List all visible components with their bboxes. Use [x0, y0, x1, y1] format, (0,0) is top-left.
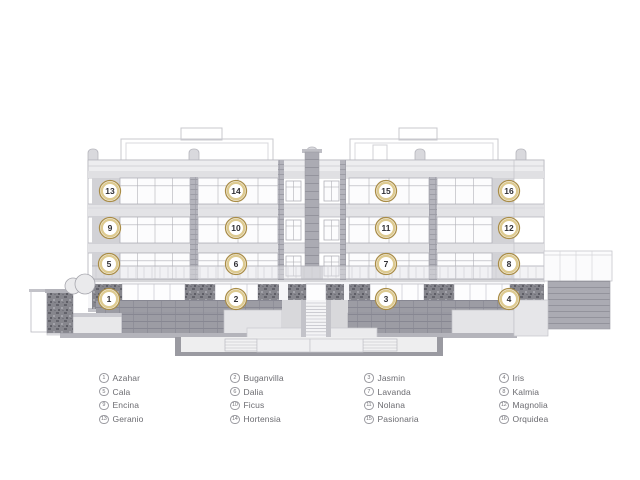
unit-number: 8 — [507, 259, 512, 269]
legend-number-icon: 8 — [499, 387, 509, 397]
legend-name: Ficus — [244, 400, 265, 410]
legend-name: Azahar — [113, 373, 141, 383]
legend-item-pasionaria: 15Pasionaria — [364, 412, 419, 426]
unit-badge-13: 13 — [100, 181, 121, 202]
legend-item-magnolia: 12Magnolia — [499, 399, 548, 413]
unit-number: 6 — [234, 259, 239, 269]
bush-icon — [75, 274, 95, 294]
legend-item-iris: 4Iris — [499, 371, 548, 385]
window-bay — [120, 217, 190, 243]
legend-item-buganvilla: 2Buganvilla — [230, 371, 284, 385]
legend-number-icon: 9 — [99, 401, 109, 411]
legend-number-icon: 3 — [364, 373, 374, 383]
legend-item-azahar: 1Azahar — [99, 371, 143, 385]
unit-badge-2: 2 — [226, 289, 247, 310]
entrance-stair — [301, 300, 331, 337]
unit-number: 16 — [504, 186, 514, 196]
legend-number-icon: 11 — [364, 401, 374, 411]
legend-number-icon: 6 — [230, 387, 240, 397]
legend-number-icon: 12 — [499, 401, 509, 411]
unit-badge-12: 12 — [499, 218, 520, 239]
legend-item-dalia: 6Dalia — [230, 385, 284, 399]
legend-name: Kalmia — [513, 387, 540, 397]
legend-number-icon: 10 — [230, 401, 240, 411]
legend-name: Cala — [113, 387, 131, 397]
legend-item-kalmia: 8Kalmia — [499, 385, 548, 399]
window-bay — [324, 220, 339, 240]
window-bay — [286, 220, 301, 240]
legend-item-geranio: 13Geranio — [99, 412, 143, 426]
unit-badge-11: 11 — [376, 218, 397, 239]
legend: 1Azahar5Cala9Encina13Geranio2Buganvilla6… — [0, 371, 640, 441]
window-bay — [120, 178, 190, 204]
unit-number: 1 — [107, 294, 112, 304]
legend-item-orquidea: 16Orquidea — [499, 412, 548, 426]
unit-number: 13 — [105, 186, 115, 196]
legend-item-nolana: 11Nolana — [364, 399, 419, 413]
unit-badge-4: 4 — [499, 289, 520, 310]
unit-number: 10 — [231, 223, 241, 233]
unit-badge-3: 3 — [376, 289, 397, 310]
legend-item-ficus: 10Ficus — [230, 399, 284, 413]
legend-name: Encina — [113, 400, 140, 410]
legend-number-icon: 7 — [364, 387, 374, 397]
unit-number: 4 — [507, 294, 512, 304]
legend-name: Dalia — [244, 387, 264, 397]
unit-badge-10: 10 — [226, 218, 247, 239]
unit-number: 2 — [234, 294, 239, 304]
legend-number-icon: 13 — [99, 415, 109, 425]
legend-column-1: 1Azahar5Cala9Encina13Geranio — [99, 371, 143, 426]
unit-badge-9: 9 — [100, 218, 121, 239]
legend-name: Pasionaria — [378, 414, 419, 424]
legend-name: Orquidea — [513, 414, 549, 424]
legend-number-icon: 4 — [499, 373, 509, 383]
architectural-elevation-page: 12345678910111213141516 1Azahar5Cala9Enc… — [0, 0, 640, 480]
unit-number: 3 — [384, 294, 389, 304]
legend-name: Hortensia — [244, 414, 281, 424]
legend-column-2: 2Buganvilla6Dalia10Ficus14Hortensia — [230, 371, 284, 426]
legend-name: Nolana — [378, 400, 406, 410]
unit-badge-15: 15 — [376, 181, 397, 202]
unit-number: 9 — [108, 223, 113, 233]
unit-badge-14: 14 — [226, 181, 247, 202]
window-bay — [437, 217, 492, 243]
unit-number: 11 — [382, 223, 391, 233]
legend-name: Geranio — [113, 414, 144, 424]
legend-number-icon: 16 — [499, 415, 509, 425]
legend-number-icon: 5 — [99, 387, 109, 397]
legend-column-4: 4Iris8Kalmia12Magnolia16Orquidea — [499, 371, 548, 426]
legend-name: Iris — [513, 373, 525, 383]
legend-item-lavanda: 7Lavanda — [364, 385, 419, 399]
legend-item-cala: 5Cala — [99, 385, 143, 399]
window-bay — [324, 181, 339, 201]
legend-name: Magnolia — [513, 400, 548, 410]
basement — [175, 337, 443, 356]
terraces — [45, 300, 540, 338]
window-bay — [437, 178, 492, 204]
unit-number: 14 — [231, 186, 241, 196]
legend-number-icon: 15 — [364, 415, 374, 425]
legend-number-icon: 14 — [230, 415, 240, 425]
unit-number: 12 — [504, 223, 514, 233]
legend-number-icon: 2 — [230, 373, 240, 383]
legend-item-hortensia: 14Hortensia — [230, 412, 284, 426]
legend-number-icon: 1 — [99, 373, 109, 383]
legend-item-encina: 9Encina — [99, 399, 143, 413]
legend-name: Jasmin — [378, 373, 406, 383]
unit-badge-16: 16 — [499, 181, 520, 202]
legend-name: Lavanda — [378, 387, 411, 397]
unit-badge-5: 5 — [99, 254, 120, 275]
unit-number: 15 — [381, 186, 391, 196]
legend-item-jasmin: 3Jasmin — [364, 371, 419, 385]
unit-number: 5 — [107, 259, 112, 269]
legend-column-3: 3Jasmin7Lavanda11Nolana15Pasionaria — [364, 371, 419, 426]
unit-number: 7 — [384, 259, 389, 269]
window-bay — [286, 181, 301, 201]
unit-badge-6: 6 — [226, 254, 247, 275]
terrace-balustrade — [92, 266, 544, 279]
unit-badge-7: 7 — [376, 254, 397, 275]
unit-badge-1: 1 — [99, 289, 120, 310]
unit-badge-8: 8 — [499, 254, 520, 275]
legend-name: Buganvilla — [244, 373, 284, 383]
